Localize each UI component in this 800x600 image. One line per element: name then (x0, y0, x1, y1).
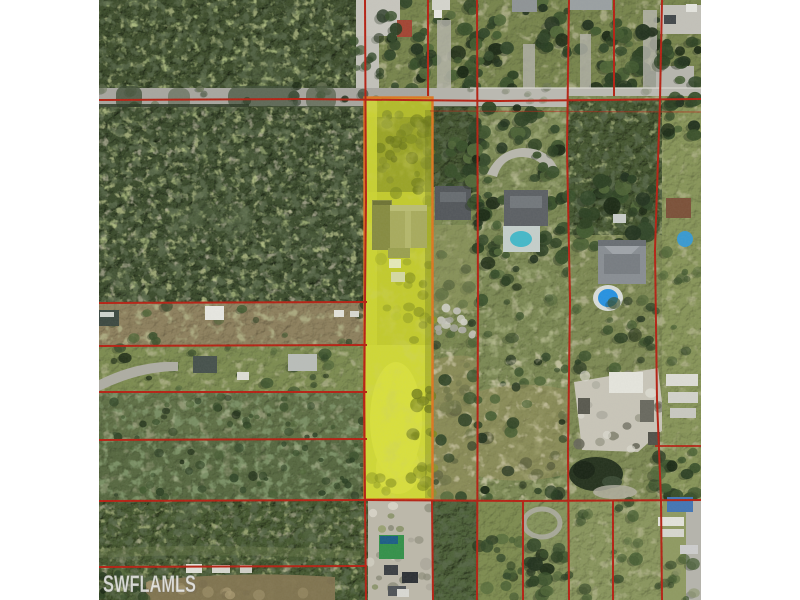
svg-text:SWFLAMLS: SWFLAMLS (103, 571, 196, 598)
